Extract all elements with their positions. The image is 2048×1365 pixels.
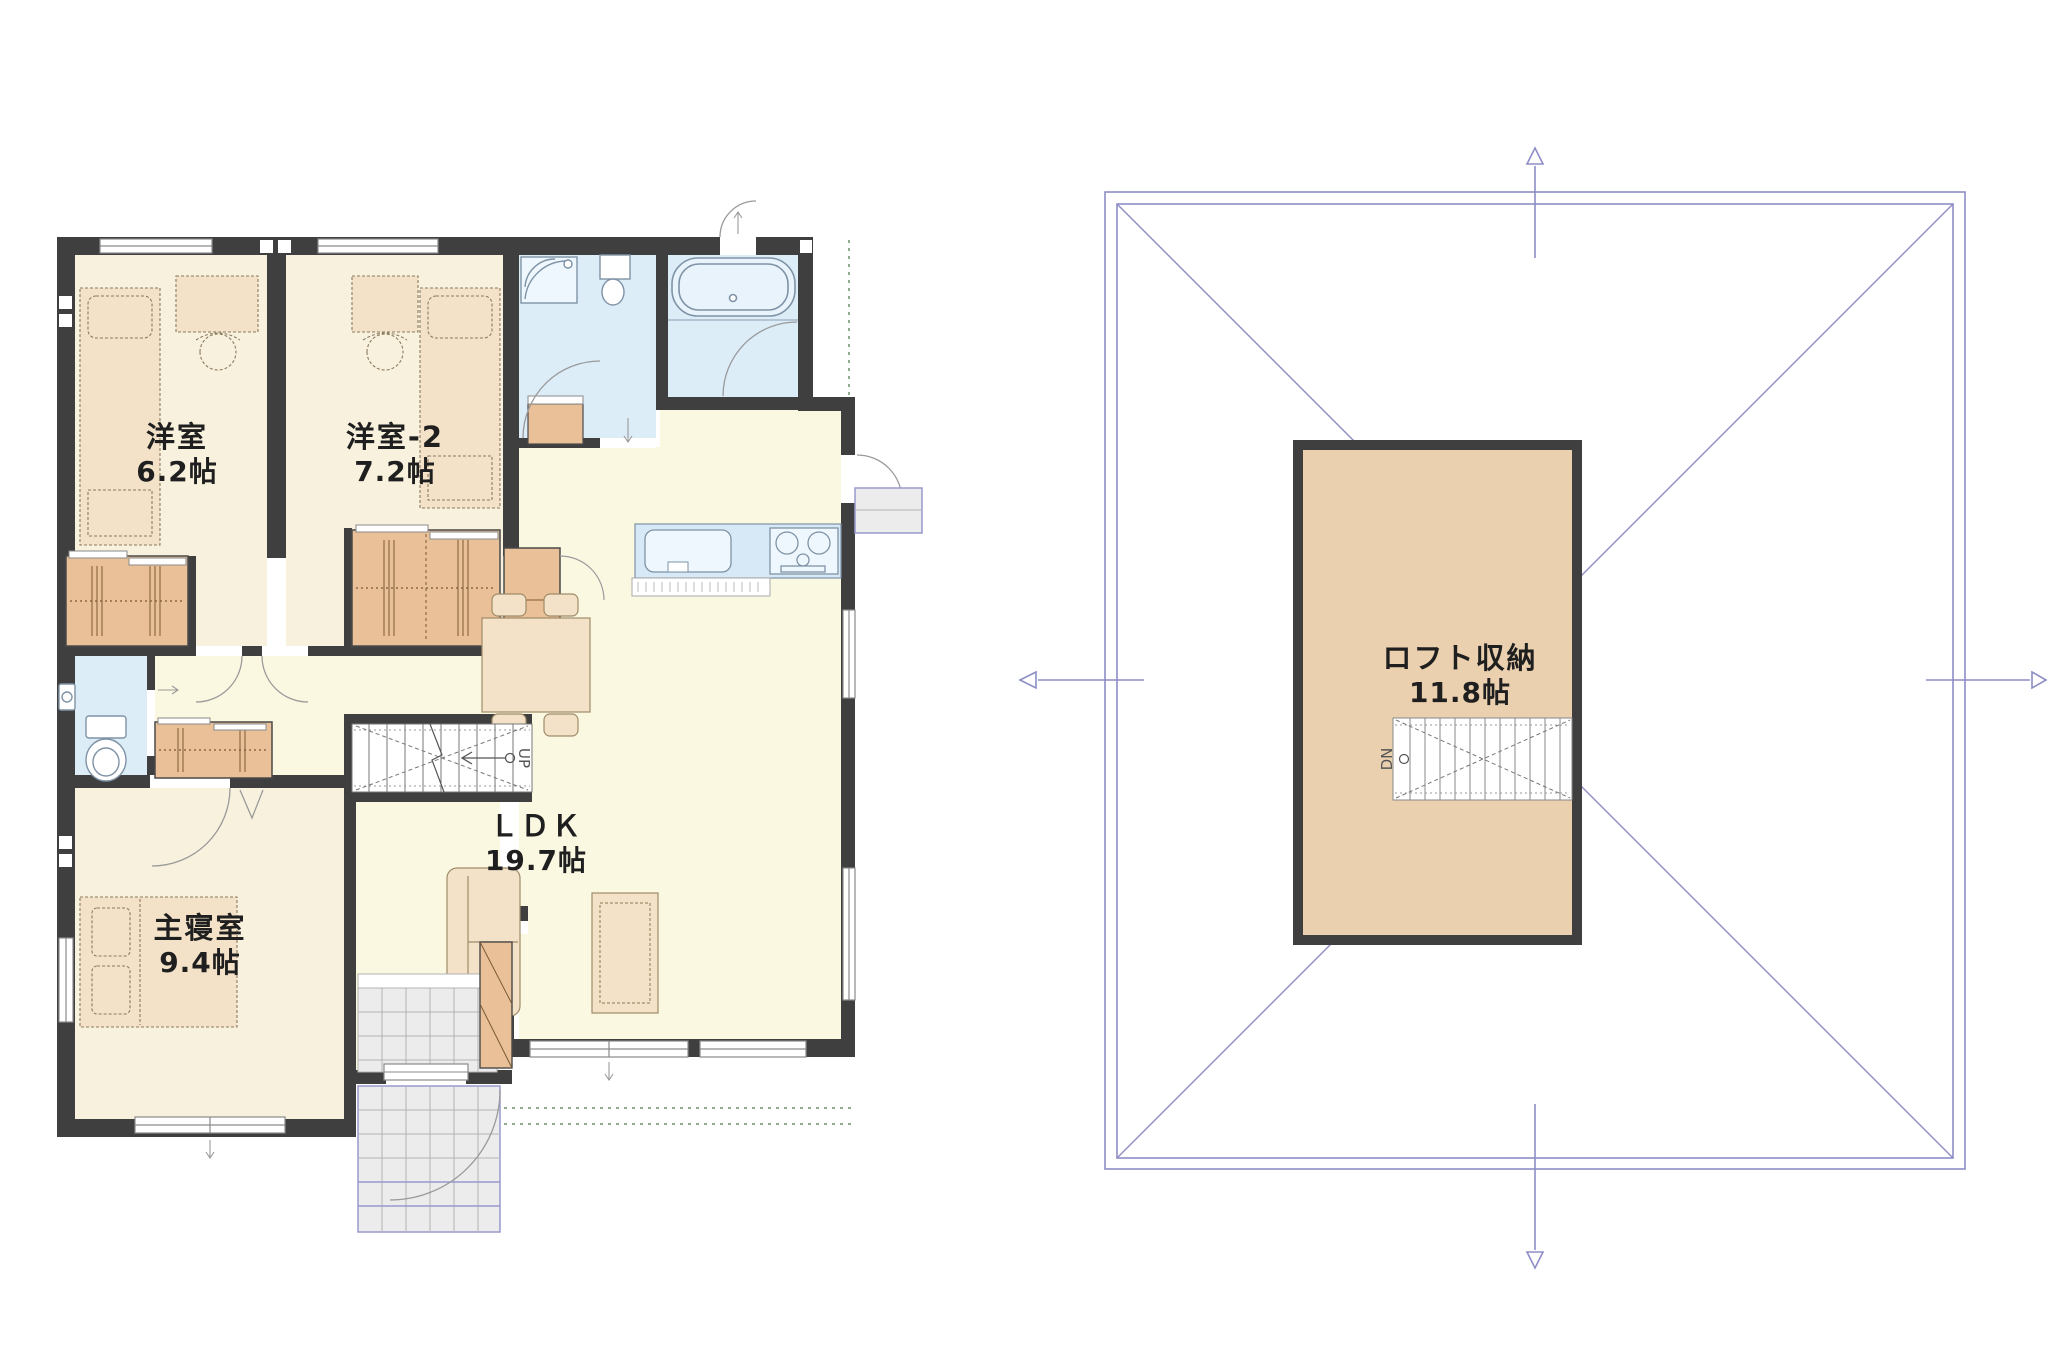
- dining-chair: [544, 594, 578, 616]
- bedroom2-size: 7.2帖: [354, 455, 436, 488]
- ldk-right-window-1: [843, 610, 855, 698]
- master-closet: [155, 718, 272, 778]
- master-left-window: [59, 938, 73, 1022]
- genkan-tile: [358, 974, 497, 1072]
- stairs-up-label: UP: [515, 748, 533, 768]
- loft-size: 11.8帖: [1409, 676, 1511, 709]
- bedroom2-closet: [352, 525, 500, 646]
- kitchen-door-landing: [855, 488, 922, 533]
- tv-board: [592, 893, 658, 1013]
- shoe-cabinet: [480, 942, 512, 1068]
- loft-room: DN ロフト収納 11.8帖: [1298, 445, 1577, 940]
- bathroom: [668, 258, 798, 320]
- master-bottom-window: [135, 1117, 285, 1133]
- counter-front-edge: [632, 578, 770, 596]
- dining-table: [482, 618, 590, 712]
- bathtub: [672, 258, 795, 316]
- toilet-sink: [59, 684, 75, 710]
- marker-bottom: [1527, 1104, 1543, 1268]
- bedroom2-desk: [352, 276, 418, 332]
- bedroom1-window: [100, 239, 212, 253]
- washroom: [521, 255, 630, 305]
- ldk-floor-upper: [660, 408, 841, 453]
- dining-chair: [544, 714, 578, 736]
- staircase: UP: [352, 724, 533, 792]
- master-size: 9.4帖: [159, 946, 241, 979]
- loft-label: ロフト収納: [1382, 641, 1537, 675]
- entrance-door: [384, 1064, 468, 1080]
- first-floor-plan: UP: [0, 0, 1000, 1365]
- master-label: 主寝室: [153, 911, 246, 945]
- kitchen-faucet: [668, 562, 688, 572]
- toilet-tank: [86, 716, 126, 738]
- marker-top: [1527, 148, 1543, 258]
- bedroom1-desk: [176, 276, 258, 332]
- bedroom1-label: 洋室: [146, 420, 208, 454]
- floor-plan-canvas: UP: [0, 0, 2048, 1365]
- washroom-cabinet: [528, 396, 583, 444]
- loft-stairs-dn-label: DN: [1378, 748, 1396, 771]
- marker-right: [1926, 672, 2046, 688]
- ldk-label: ＬＤＫ: [489, 809, 582, 843]
- ldk-right-window-2: [843, 868, 855, 1000]
- washing-machine: [521, 257, 577, 303]
- loft-roof-plan: DN ロフト収納 11.8帖: [1000, 0, 2048, 1365]
- kitchen-stove: [770, 528, 838, 574]
- loft-staircase: DN: [1378, 718, 1572, 800]
- bedroom2-label: 洋室-2: [346, 420, 444, 454]
- marker-left: [1020, 672, 1144, 688]
- bedroom1-size: 6.2帖: [136, 455, 218, 488]
- ldk-size: 19.7帖: [485, 844, 587, 877]
- ldk-bottom-window-1: [530, 1041, 688, 1057]
- bedroom2-window: [318, 239, 438, 253]
- entrance-porch: [358, 1086, 500, 1232]
- bedroom1-closet: [66, 551, 188, 646]
- dining-chair: [492, 594, 526, 616]
- ldk-bottom-window-2: [700, 1041, 806, 1057]
